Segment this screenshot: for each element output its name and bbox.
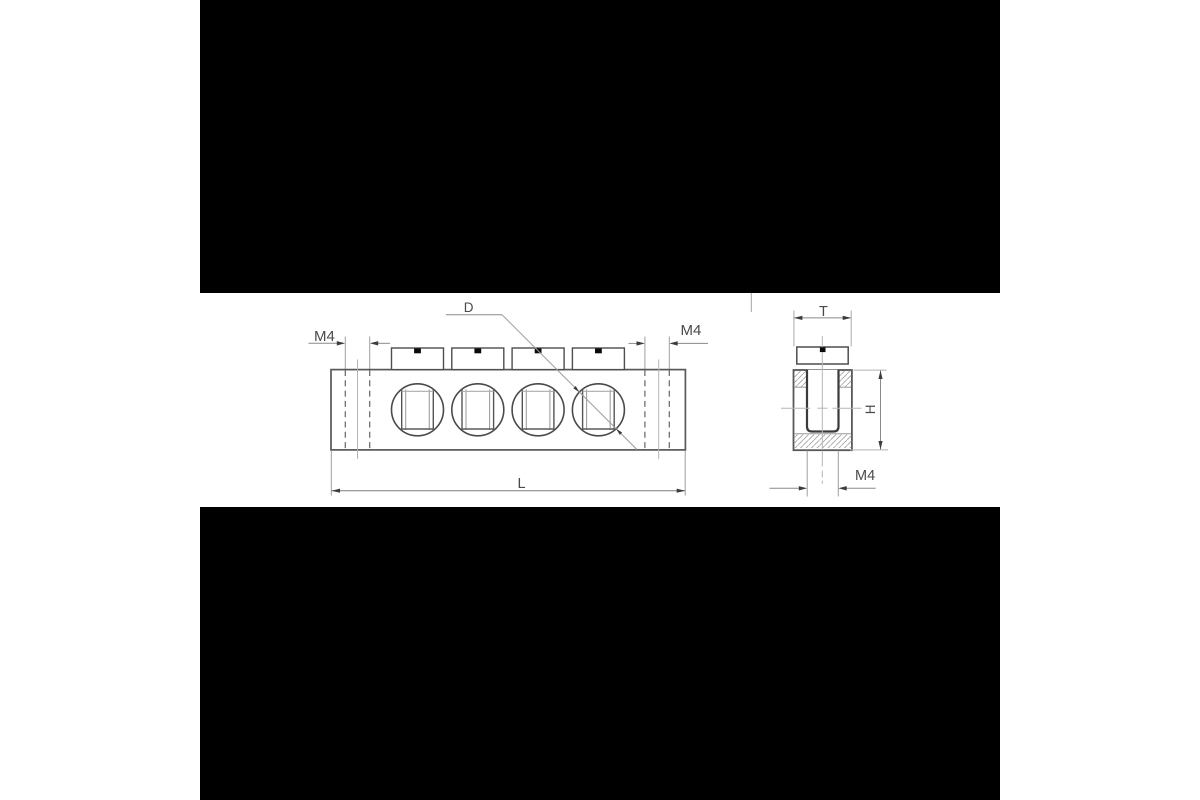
svg-text:M4: M4 [855,468,875,484]
svg-text:D: D [464,300,474,315]
svg-text:H: H [863,404,878,414]
svg-text:M4: M4 [314,328,335,345]
svg-text:L: L [518,476,526,492]
svg-text:M4: M4 [681,322,702,339]
